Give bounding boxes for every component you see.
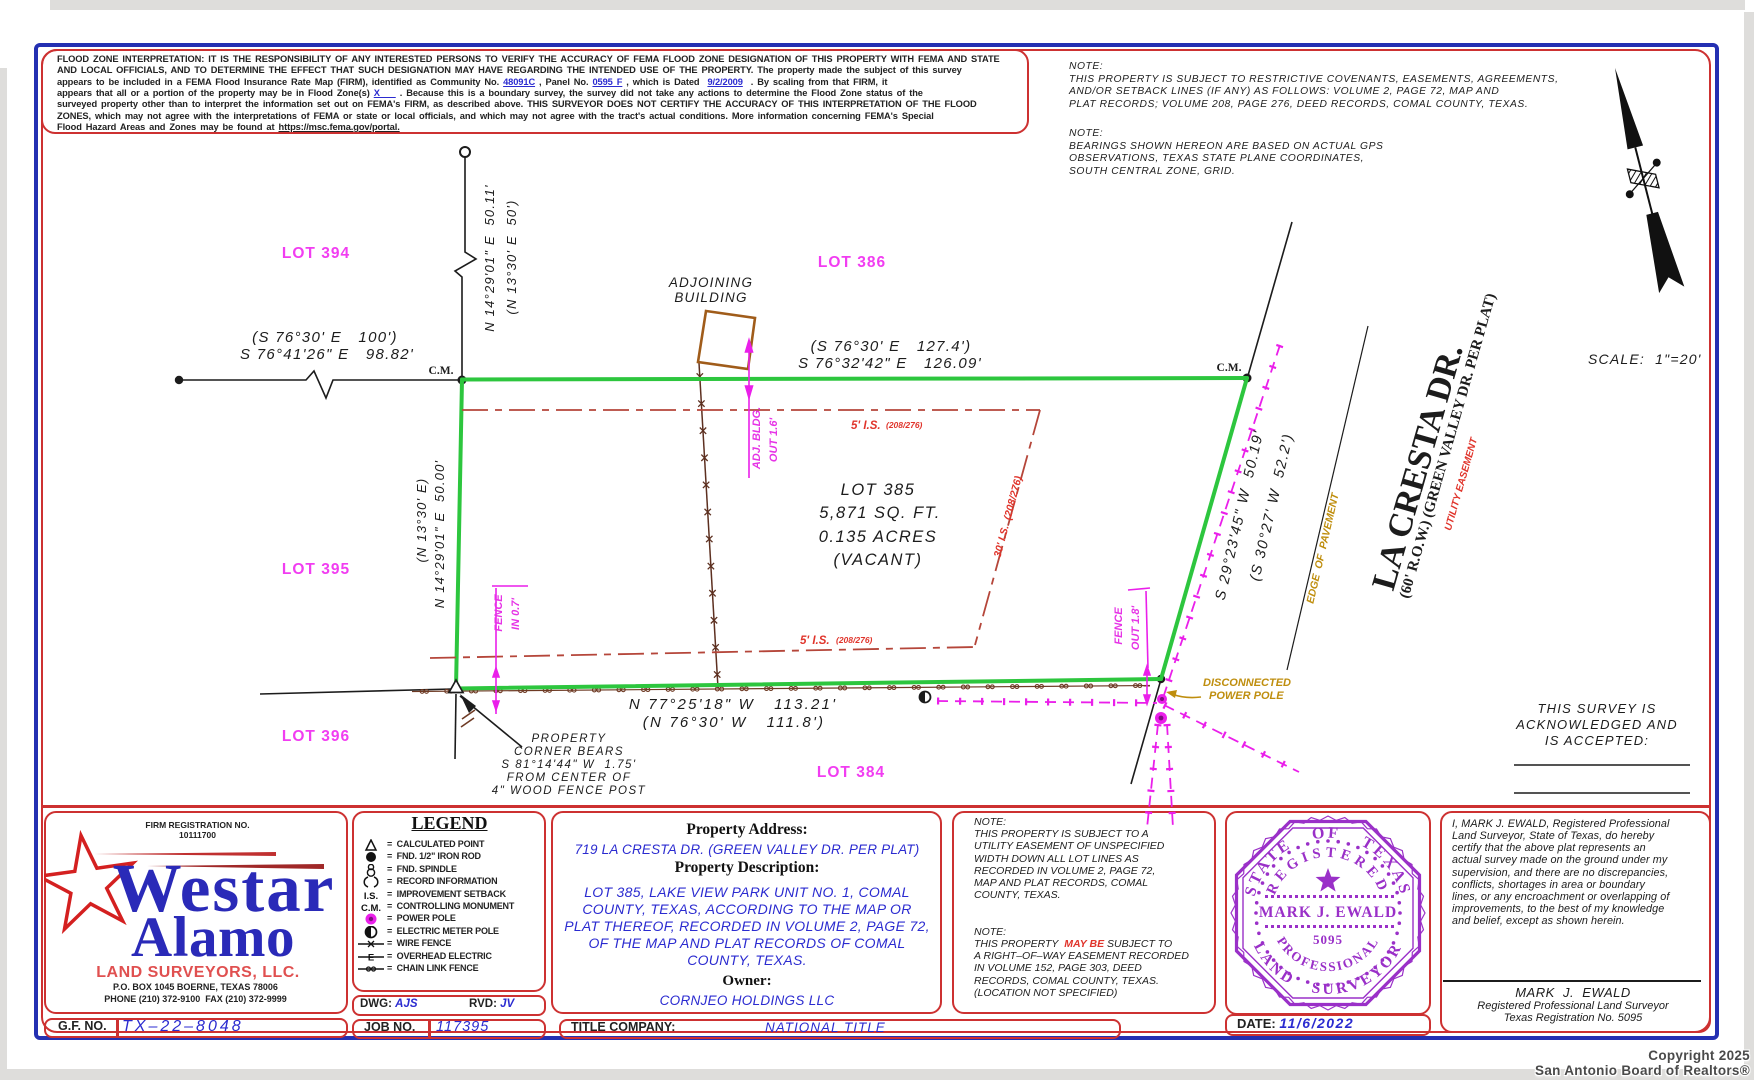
svg-text:SCALE: 1"=20': SCALE: 1"=20' xyxy=(1588,351,1702,367)
svg-text:(S 76°30' E 127.4'): (S 76°30' E 127.4') xyxy=(811,338,972,355)
svg-text:4" WOOD FENCE POST: 4" WOOD FENCE POST xyxy=(492,785,646,797)
svg-text:CORNER BEARS: CORNER BEARS xyxy=(514,746,624,758)
svg-text:5095: 5095 xyxy=(1313,932,1343,947)
svg-text:(N 13°30' E): (N 13°30' E) xyxy=(414,478,429,563)
svg-text:LOT 394: LOT 394 xyxy=(282,245,350,262)
svg-text:DISCONNECTED: DISCONNECTED xyxy=(1203,677,1291,689)
svg-text:(208/276): (208/276) xyxy=(836,635,873,645)
svg-text:(N 76°30' W 111.8'): (N 76°30' W 111.8') xyxy=(643,714,825,731)
svg-text:5' I.S.: 5' I.S. xyxy=(851,420,881,432)
svg-text:S 81°14'44" W 1.75': S 81°14'44" W 1.75' xyxy=(501,759,636,771)
svg-text:S 76°41'26" E 98.82': S 76°41'26" E 98.82' xyxy=(240,346,414,363)
svg-text:(N 13°30' E 50'): (N 13°30' E 50') xyxy=(504,199,519,314)
svg-text:30' I.S. (208/276): 30' I.S. (208/276) xyxy=(992,474,1025,558)
svg-text:LOT 396: LOT 396 xyxy=(282,728,350,745)
svg-text:THIS SURVEY IS: THIS SURVEY IS xyxy=(1538,701,1657,716)
svg-text:LOT 386: LOT 386 xyxy=(818,254,886,271)
svg-text:MARK J. EWALD: MARK J. EWALD xyxy=(1259,904,1397,921)
svg-text:(S 76°30' E 100'): (S 76°30' E 100') xyxy=(252,329,398,346)
svg-text:OUT 1.6': OUT 1.6' xyxy=(768,418,780,463)
svg-text:PROPERTY: PROPERTY xyxy=(531,733,606,745)
svg-text:POWER POLE: POWER POLE xyxy=(1209,690,1284,702)
svg-text:EDGE OF PAVEMENT: EDGE OF PAVEMENT xyxy=(1305,490,1342,604)
svg-text:LOT 385: LOT 385 xyxy=(841,481,916,499)
svg-text:IN 0.7': IN 0.7' xyxy=(510,598,522,630)
svg-text:N 14°29'01" E 50.00': N 14°29'01" E 50.00' xyxy=(432,460,447,608)
svg-text:5' I.S.: 5' I.S. xyxy=(800,635,830,647)
svg-text:5,871 SQ. FT.: 5,871 SQ. FT. xyxy=(819,504,941,522)
svg-text:FENCE: FENCE xyxy=(1113,607,1125,645)
svg-text:C.M.: C.M. xyxy=(429,365,454,377)
svg-text:N 77°25'18" W 113.21': N 77°25'18" W 113.21' xyxy=(629,696,837,713)
svg-text:0.135 ACRES: 0.135 ACRES xyxy=(819,528,938,546)
svg-text:(VACANT): (VACANT) xyxy=(833,551,922,569)
svg-text:LOT 384: LOT 384 xyxy=(817,764,885,781)
svg-text:OUT 1.8': OUT 1.8' xyxy=(1130,606,1142,651)
svg-text:S 76°32'42" E 126.09': S 76°32'42" E 126.09' xyxy=(798,355,982,372)
svg-text:IS ACCEPTED:: IS ACCEPTED: xyxy=(1545,733,1649,748)
svg-text:ACKNOWLEDGED AND: ACKNOWLEDGED AND xyxy=(1515,717,1678,732)
svg-text:(208/276): (208/276) xyxy=(886,420,923,430)
svg-text:FROM CENTER OF: FROM CENTER OF xyxy=(507,772,632,784)
svg-text:BUILDING: BUILDING xyxy=(674,290,747,305)
svg-text:LOT 395: LOT 395 xyxy=(282,561,350,578)
svg-text:FENCE: FENCE xyxy=(493,594,505,632)
svg-text:ADJ. BLDG.: ADJ. BLDG. xyxy=(751,407,763,470)
svg-text:ADJOINING: ADJOINING xyxy=(668,275,753,290)
svg-text:N 14°29'01" E 50.11': N 14°29'01" E 50.11' xyxy=(482,184,497,331)
svg-text:C.M.: C.M. xyxy=(1217,362,1242,374)
